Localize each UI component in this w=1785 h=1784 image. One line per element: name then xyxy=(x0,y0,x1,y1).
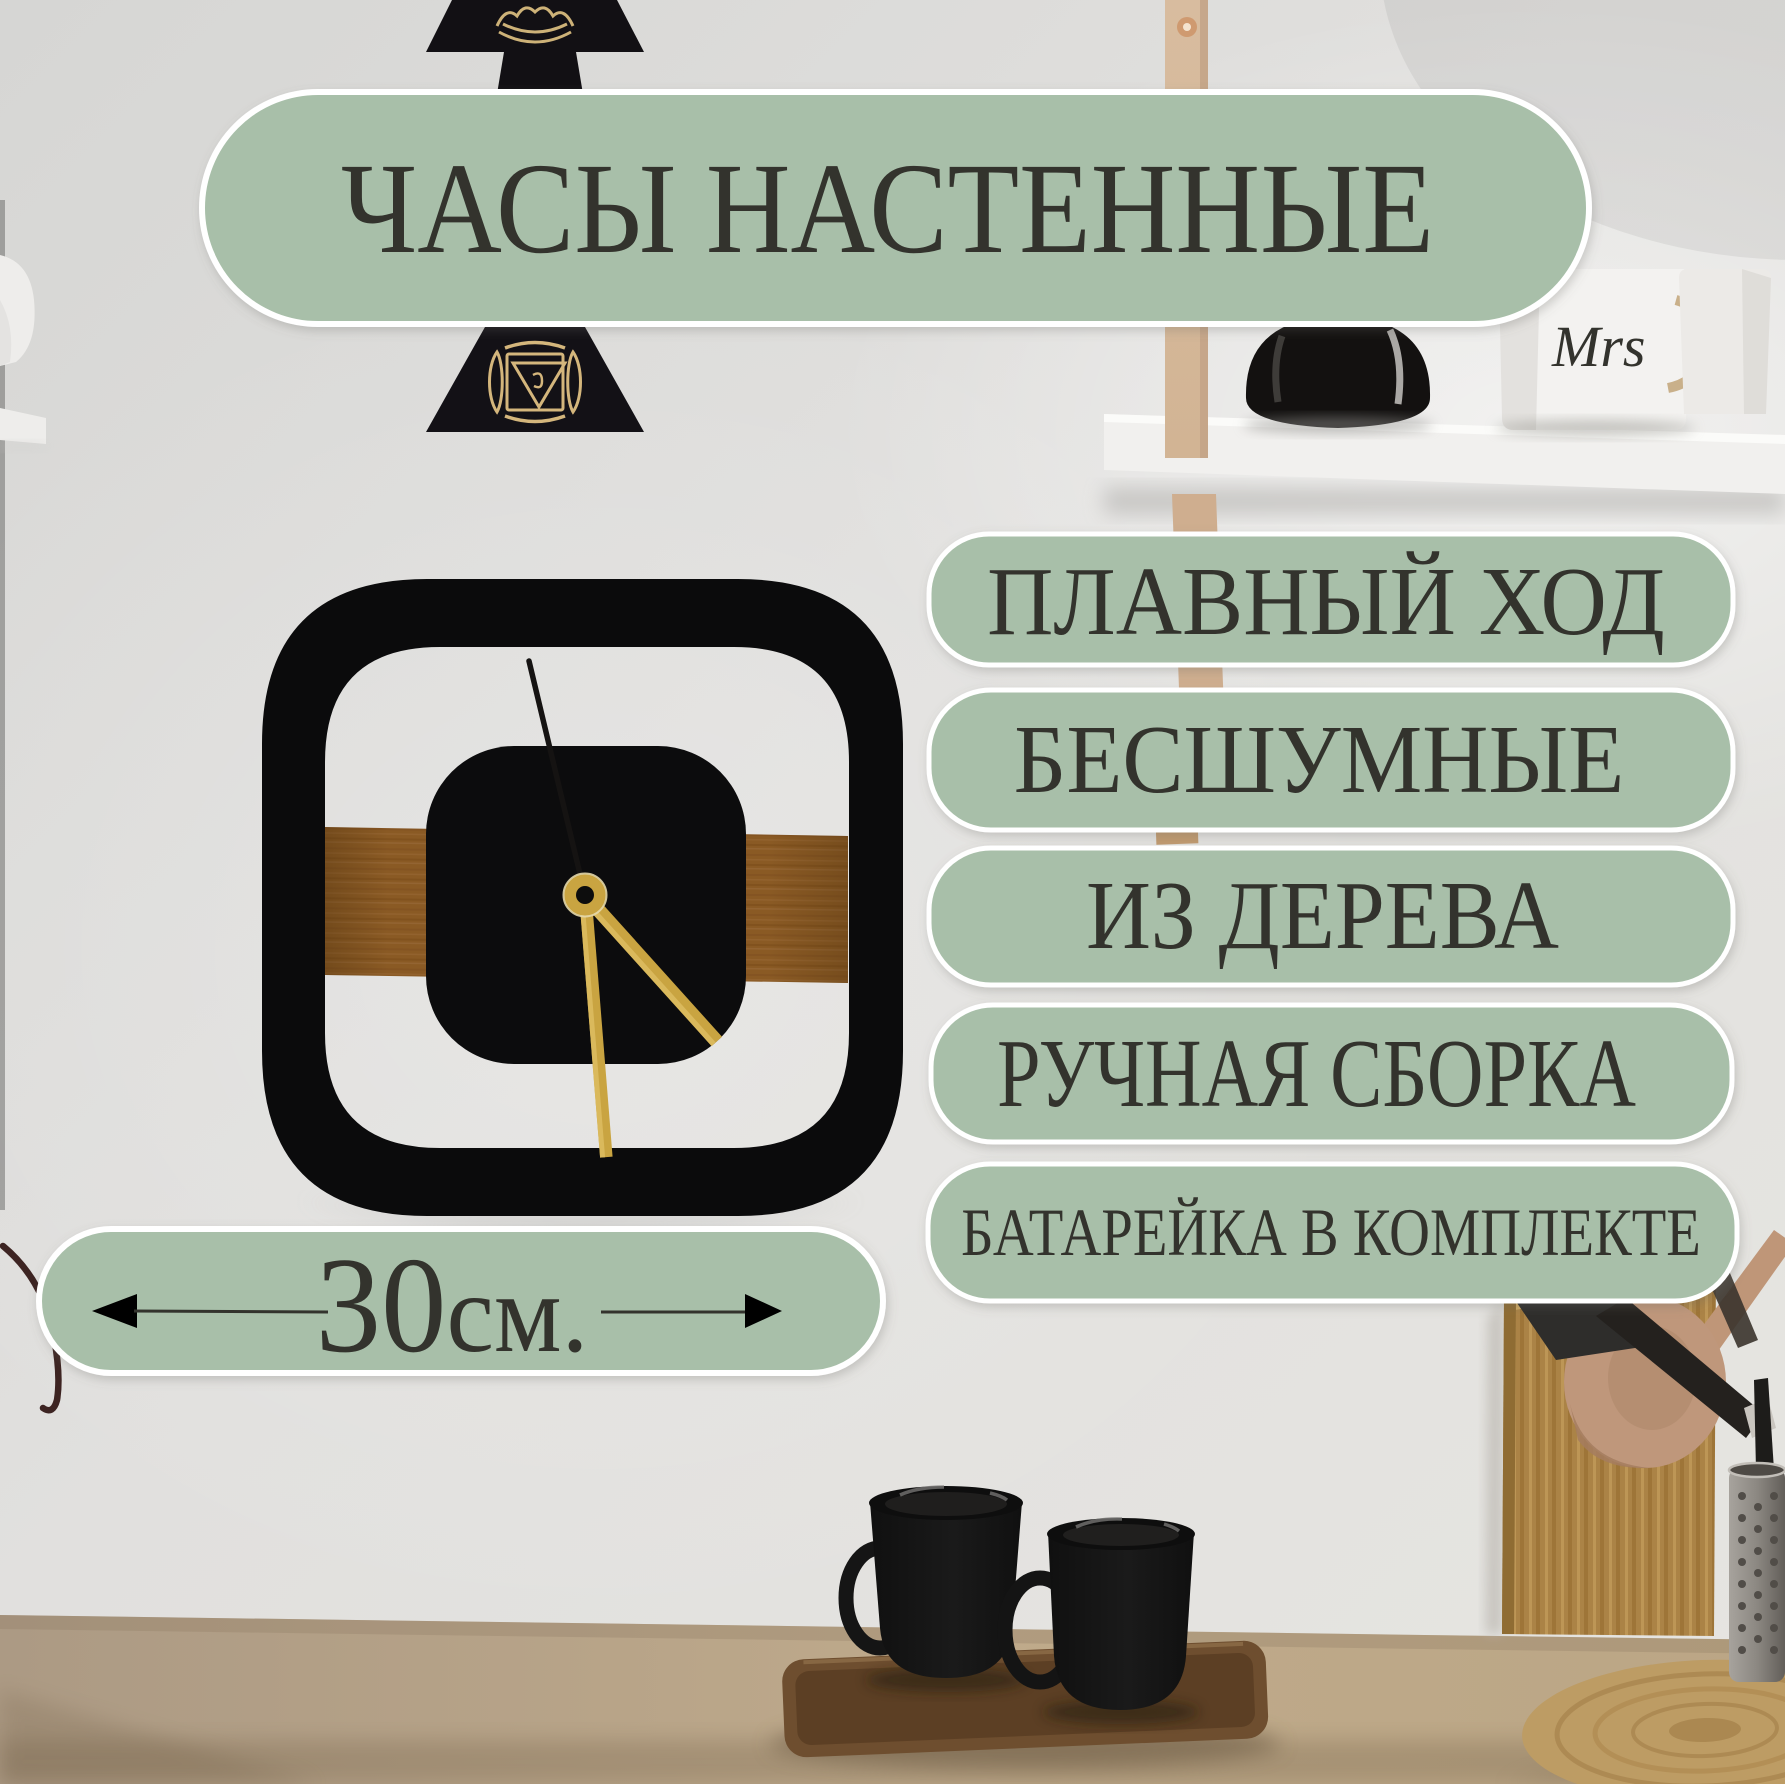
svg-text:БЕСШУМНЫЕ: БЕСШУМНЫЕ xyxy=(1014,704,1624,813)
svg-text:ИЗ ДЕРЕВА: ИЗ ДЕРЕВА xyxy=(1086,862,1559,970)
svg-text:РУЧНАЯ СБОРКА: РУЧНАЯ СБОРКА xyxy=(997,1020,1636,1128)
svg-text:30см.: 30см. xyxy=(316,1229,589,1380)
svg-text:ПЛАВНЫЙ ХОД: ПЛАВНЫЙ ХОД xyxy=(987,546,1665,655)
svg-text:ЧАСЫ НАСТЕННЫЕ: ЧАСЫ НАСТЕННЫЕ xyxy=(341,136,1434,280)
svg-text:Mrs: Mrs xyxy=(1551,314,1645,379)
svg-text:БАТАРЕЙКА В КОМПЛЕКТЕ: БАТАРЕЙКА В КОМПЛЕКТЕ xyxy=(961,1194,1701,1270)
